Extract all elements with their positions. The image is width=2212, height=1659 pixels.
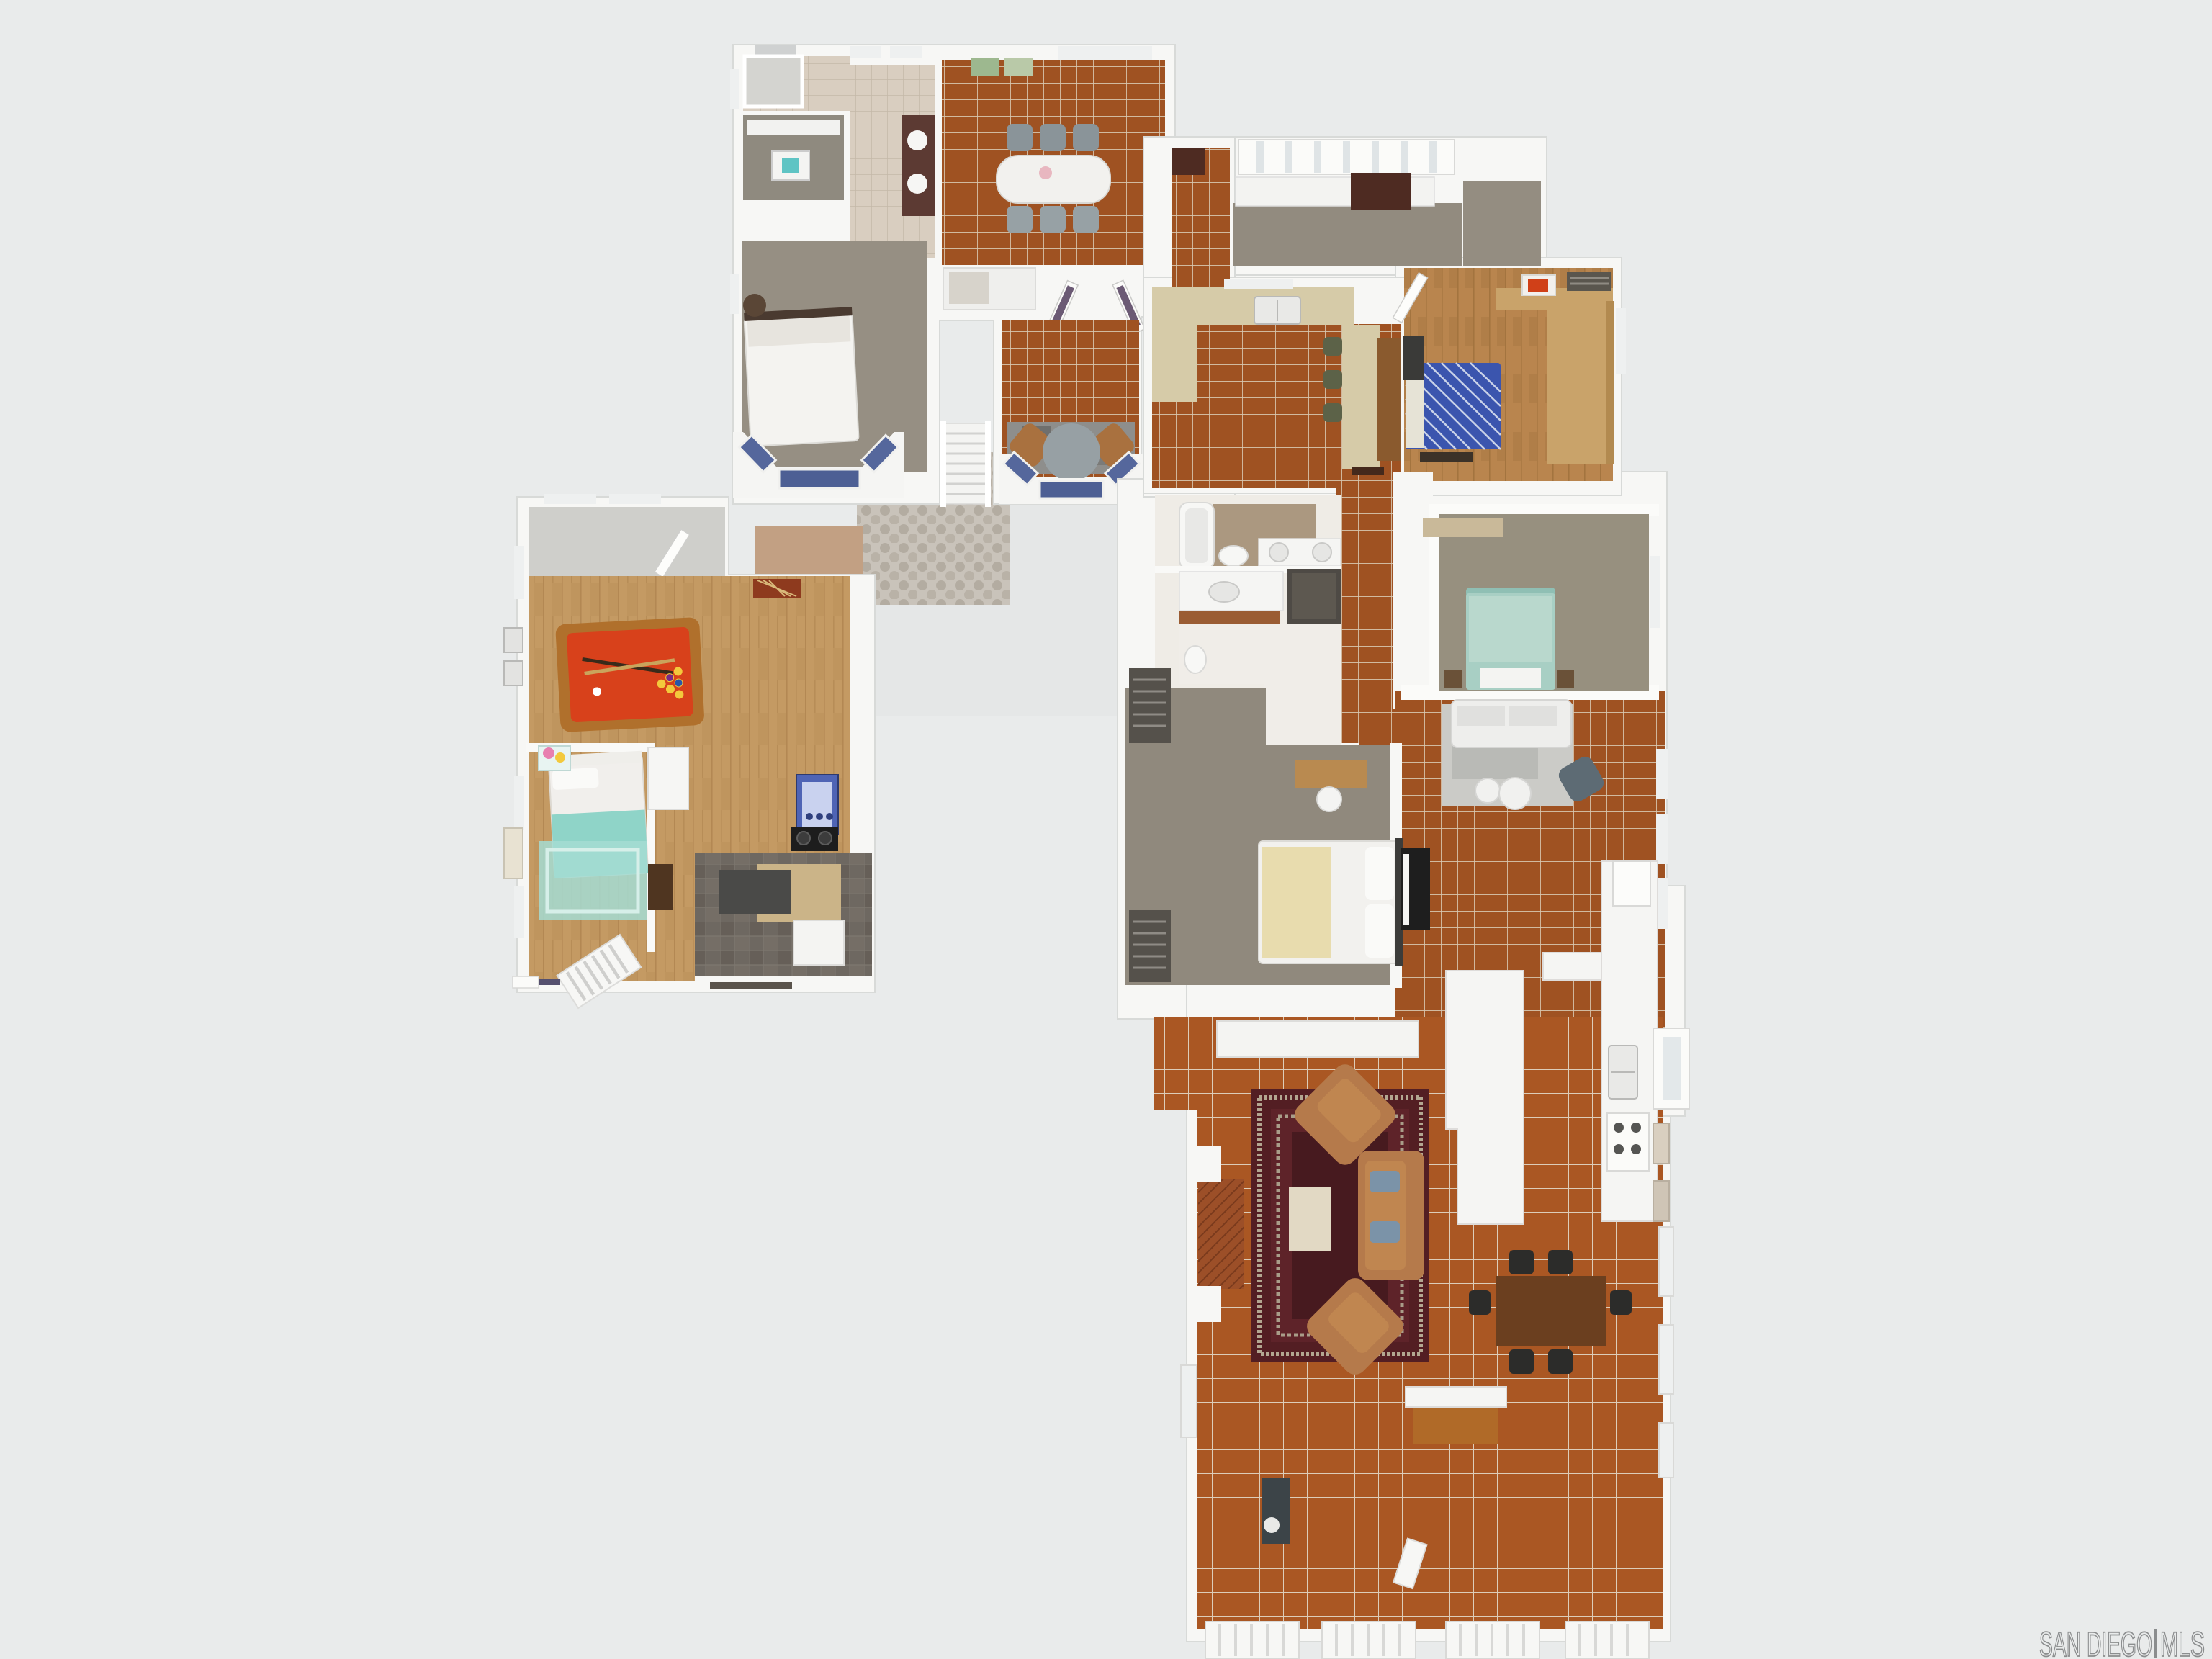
- svg-text:MLS: MLS: [2160, 1626, 2205, 1659]
- svg-text:SAN DIEGO: SAN DIEGO: [2039, 1626, 2152, 1659]
